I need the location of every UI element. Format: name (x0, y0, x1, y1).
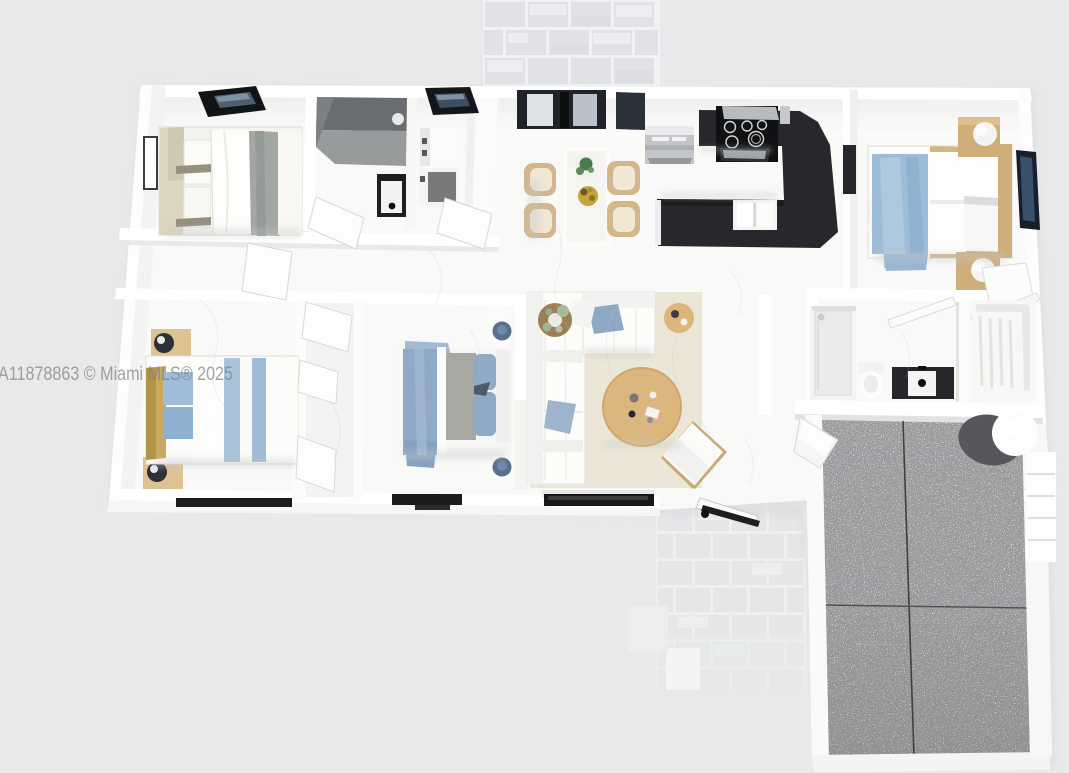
svg-text:A11878863 © Miami MLS® 2025: A11878863 © Miami MLS® 2025 (0, 364, 233, 385)
